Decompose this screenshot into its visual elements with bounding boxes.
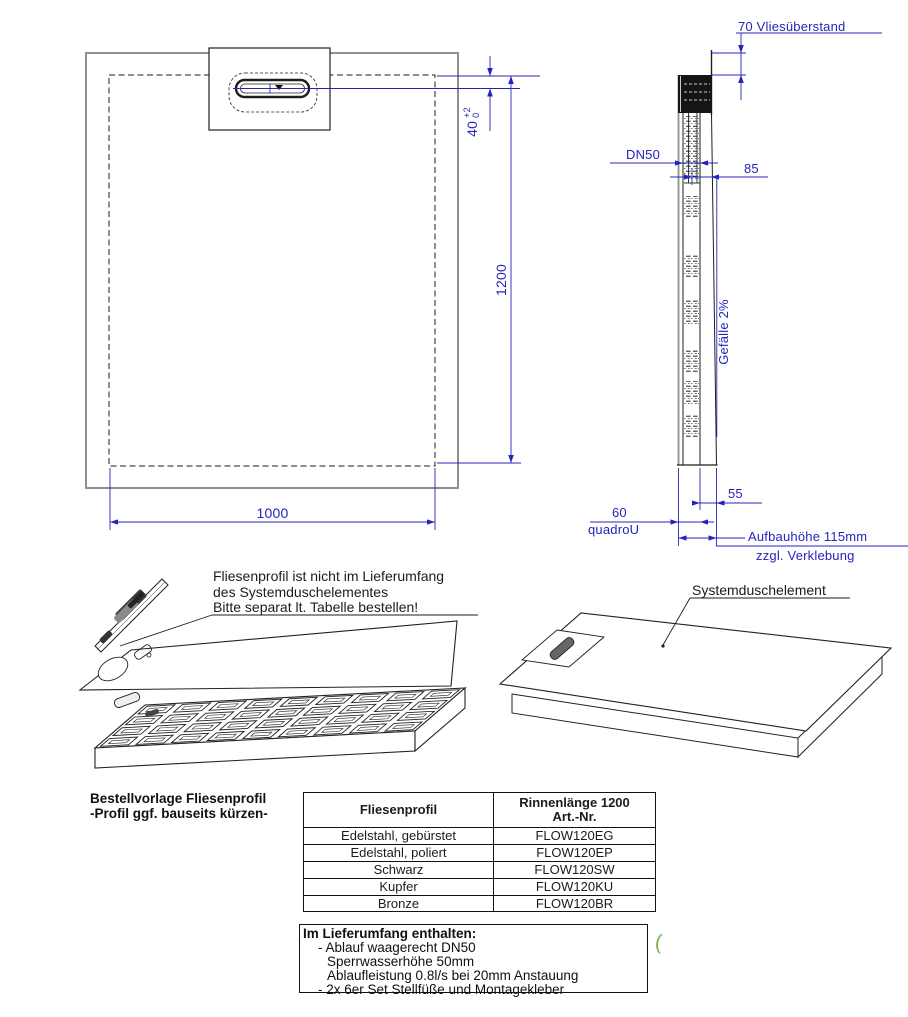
- tile-profile-note: Fliesenprofil ist nicht im Lieferumfang …: [213, 569, 444, 616]
- cell-material: Edelstahl, gebürstet: [304, 828, 494, 845]
- dim-label-length-1200: 1200: [493, 259, 509, 301]
- cell-material: Schwarz: [304, 861, 494, 878]
- system-element-label: Systemduschelement: [692, 582, 826, 598]
- header-artnr-line1: Rinnenlänge 1200: [495, 796, 654, 810]
- dim-label-drain-offset-40: 40 +2 0: [457, 92, 487, 152]
- scope-title: Im Lieferumfang enthalten:: [303, 927, 644, 941]
- cell-artnr: FLOW120EG: [494, 828, 656, 845]
- header-artnr-line2: Art.-Nr.: [495, 810, 654, 824]
- table-row: Bronze FLOW120BR: [304, 895, 656, 912]
- build-height-note: zzgl. Verklebung: [756, 548, 855, 563]
- table-row: Schwarz FLOW120SW: [304, 861, 656, 878]
- cell-material: Bronze: [304, 895, 494, 912]
- cell-material: Edelstahl, poliert: [304, 844, 494, 861]
- order-caption-line1: Bestellvorlage Fliesenprofil: [90, 791, 268, 806]
- section-view-drawing: [590, 33, 908, 546]
- fleece-note-label: 70 Vliesüberstand: [738, 19, 845, 34]
- build-height-label: Aufbauhöhe 115mm: [748, 529, 867, 544]
- scope-item: - 2x 6er Set Stellfüße und Montagekleber: [303, 983, 644, 997]
- order-caption: Bestellvorlage Fliesenprofil -Profil ggf…: [90, 791, 268, 821]
- order-table-header-row: Fliesenprofil Rinnenlänge 1200 Art.-Nr.: [304, 793, 656, 828]
- iso-view-drawing: [500, 598, 891, 757]
- cell-artnr: FLOW120EP: [494, 844, 656, 861]
- dim-tolerance: +2 0: [463, 107, 481, 118]
- scope-item: - Ablauf waagerecht DN50: [303, 941, 644, 955]
- dim-value-40: 40: [464, 121, 480, 137]
- dim-label-85: 85: [744, 161, 759, 176]
- scope-of-delivery-box: Im Lieferumfang enthalten: - Ablauf waag…: [299, 924, 648, 993]
- table-row: Edelstahl, gebürstet FLOW120EG: [304, 828, 656, 845]
- header-fliesenprofil: Fliesenprofil: [304, 793, 494, 828]
- cell-artnr: FLOW120KU: [494, 878, 656, 895]
- note-line-1: Fliesenprofil ist nicht im Lieferumfang: [213, 569, 444, 585]
- table-row: Edelstahl, poliert FLOW120EP: [304, 844, 656, 861]
- series-name-label: quadroU: [588, 522, 639, 537]
- technical-drawing-sheet: 1000 1200 40 +2 0 70 Vliesüberstand DN50…: [0, 0, 908, 1017]
- scope-item: Ablaufleistung 0.8l/s bei 20mm Anstauung: [303, 969, 644, 983]
- dim-label-60: 60: [612, 505, 627, 520]
- order-caption-line2: -Profil ggf. bauseits kürzen-: [90, 806, 268, 821]
- slope-label: Gefälle 2%: [715, 286, 731, 378]
- dim-label-55: 55: [728, 486, 743, 501]
- cell-artnr: FLOW120SW: [494, 861, 656, 878]
- cell-material: Kupfer: [304, 878, 494, 895]
- tolerance-lower: 0: [472, 107, 481, 118]
- note-line-3: Bitte separat lt. Tabelle bestellen!: [213, 600, 444, 616]
- order-table: Fliesenprofil Rinnenlänge 1200 Art.-Nr. …: [303, 792, 656, 912]
- table-row: Kupfer FLOW120KU: [304, 878, 656, 895]
- header-artnr: Rinnenlänge 1200 Art.-Nr.: [494, 793, 656, 828]
- cell-artnr: FLOW120BR: [494, 895, 656, 912]
- dim-label-width-1000: 1000: [220, 505, 325, 521]
- drain-size-label: DN50: [626, 147, 660, 162]
- note-line-2: des Systemduschelementes: [213, 585, 444, 601]
- scope-item: Sperrwasserhöhe 50mm: [303, 955, 644, 969]
